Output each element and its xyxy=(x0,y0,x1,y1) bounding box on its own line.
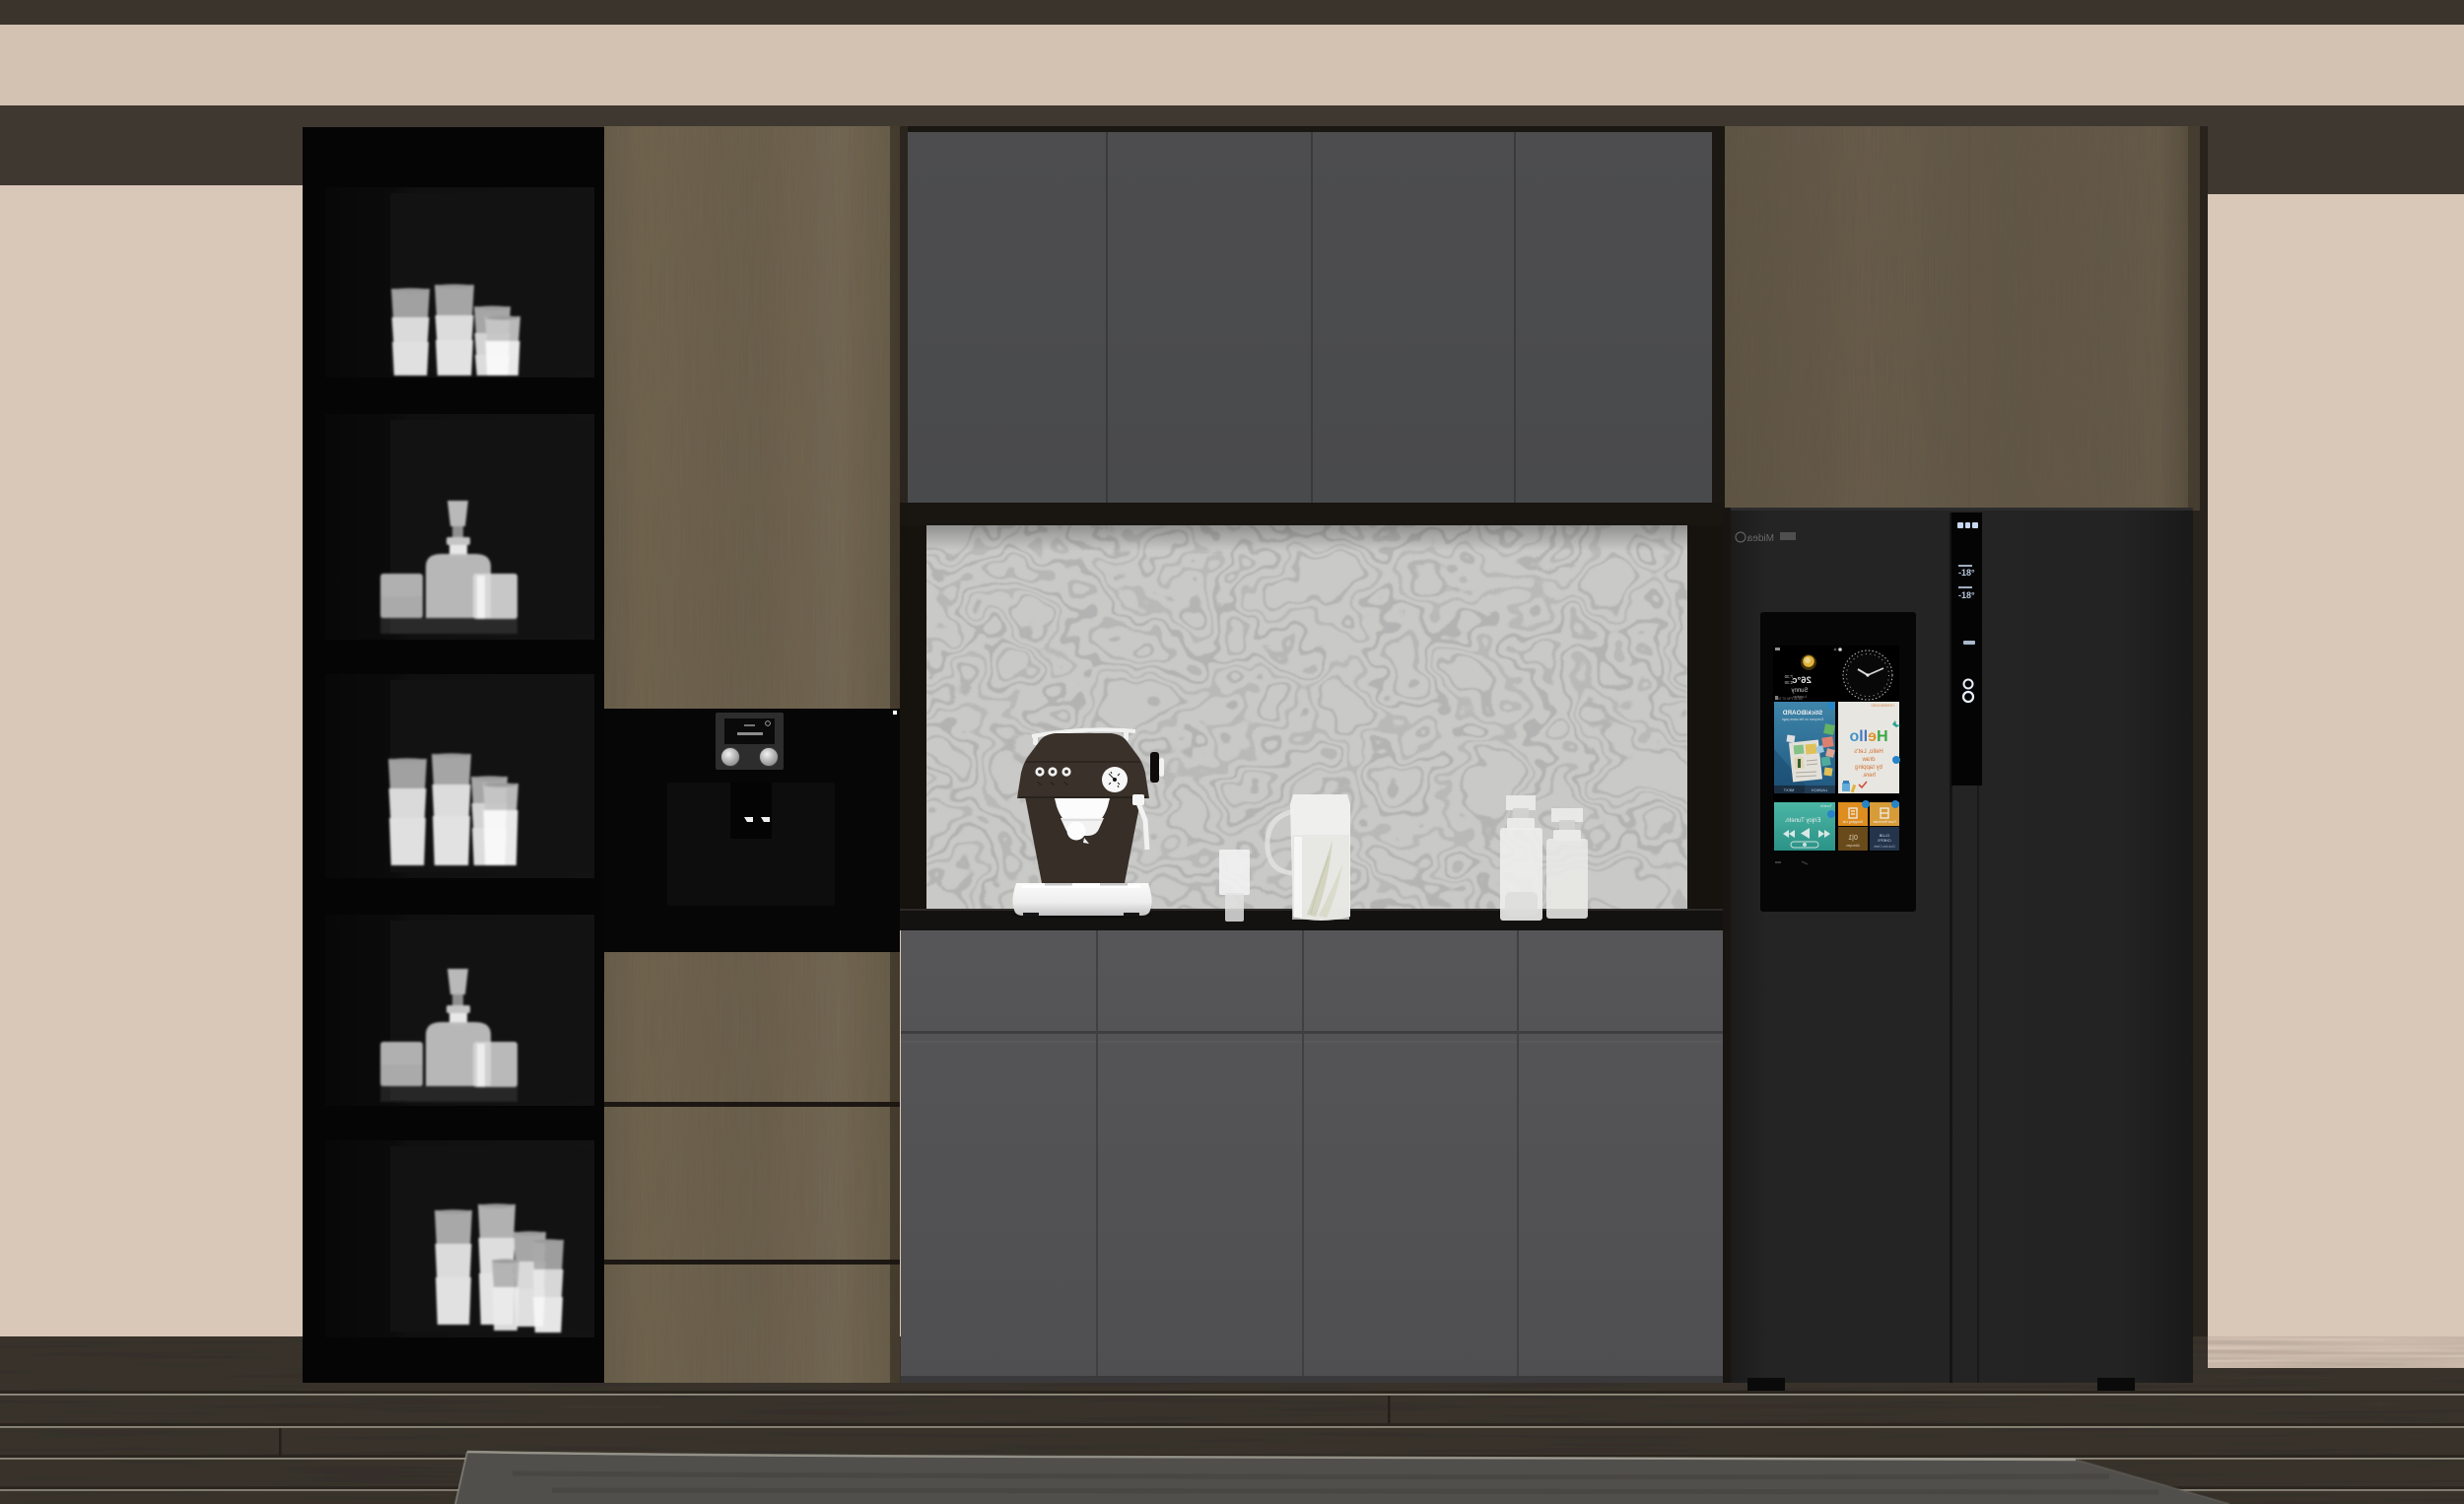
svg-text:-18°: -18° xyxy=(1958,568,1975,578)
svg-text:-18°: -18° xyxy=(1958,590,1975,600)
svg-text:Midea: Midea xyxy=(1746,533,1774,544)
